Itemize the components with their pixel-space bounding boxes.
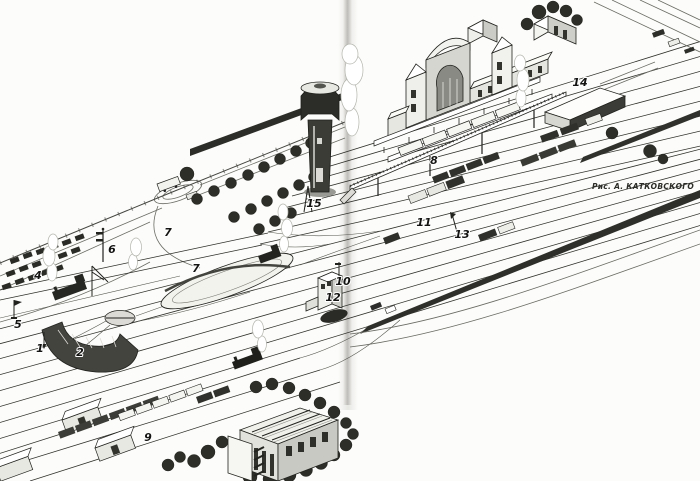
railway-station-illustration: 1 2 4 5 6 7 7 8 9 10 11 12 13 14 15 Рис.… (0, 0, 700, 481)
callout-11: 11 (416, 216, 431, 229)
callout-9: 9 (144, 431, 152, 444)
callout-5: 5 (14, 318, 22, 331)
callout-12: 12 (325, 291, 341, 304)
scanned-page: 1 2 4 5 6 7 7 8 9 10 11 12 13 14 15 Рис.… (0, 0, 700, 481)
callout-6: 6 (108, 243, 116, 256)
callout-10: 10 (335, 275, 351, 288)
factory-stair-tower (228, 436, 252, 481)
callout-7a: 7 (164, 226, 172, 239)
callout-2: 2 (76, 346, 84, 359)
callout-13: 13 (454, 228, 470, 241)
artist-credit: Рис. А. КАТКОВСКОГО (592, 182, 694, 191)
station-tower-left (406, 72, 426, 128)
callout-15: 15 (306, 197, 322, 210)
callout-14: 14 (572, 76, 587, 89)
callout-1: 1 (36, 342, 44, 355)
callout-7b: 7 (192, 262, 200, 275)
callout-8: 8 (430, 154, 438, 167)
callout-4: 4 (33, 269, 42, 282)
